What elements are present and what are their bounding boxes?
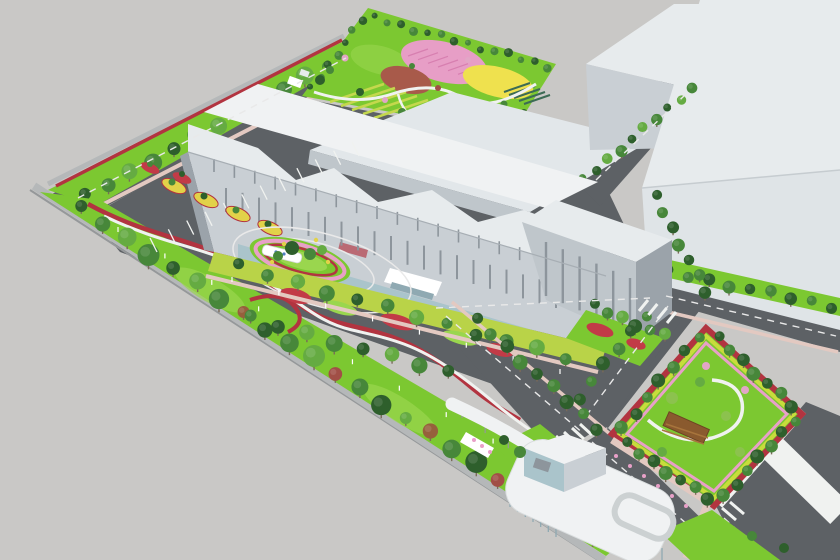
tree [233, 207, 240, 214]
flower-dot [282, 242, 286, 246]
flower-dot [488, 450, 492, 454]
flower-dot [684, 504, 688, 508]
tree [285, 241, 299, 255]
tree [409, 63, 415, 69]
tree [514, 446, 526, 458]
tree [317, 245, 327, 255]
tree [382, 97, 388, 103]
flower-dot [628, 464, 632, 468]
tree [201, 193, 208, 200]
flower-dot [270, 260, 274, 264]
flower-dot [472, 438, 476, 442]
tree [265, 221, 272, 228]
tree [666, 392, 678, 404]
tree [721, 411, 731, 421]
tree [304, 248, 316, 260]
tree [695, 377, 705, 387]
tree [273, 251, 283, 261]
aerial-rendering [0, 0, 840, 560]
flower-dot [656, 484, 660, 488]
tree [465, 57, 471, 63]
tree [657, 447, 667, 457]
flower-dot [326, 260, 330, 264]
flower-dot [642, 474, 646, 478]
flower-dot [614, 454, 618, 458]
tree [741, 386, 749, 394]
tree [326, 66, 334, 74]
tree [702, 362, 710, 370]
flower-dot [314, 238, 318, 242]
tree [179, 171, 185, 177]
rendering-stage: Aerial 3D architectural rendering of an … [0, 0, 840, 560]
tree [747, 531, 757, 541]
tree [315, 75, 325, 85]
tree [779, 543, 789, 553]
tree [499, 435, 509, 445]
tree [356, 88, 364, 96]
tree [169, 179, 176, 186]
flower-dot [480, 444, 484, 448]
flower-dot [670, 494, 674, 498]
tree [435, 85, 441, 91]
tree [735, 447, 745, 457]
